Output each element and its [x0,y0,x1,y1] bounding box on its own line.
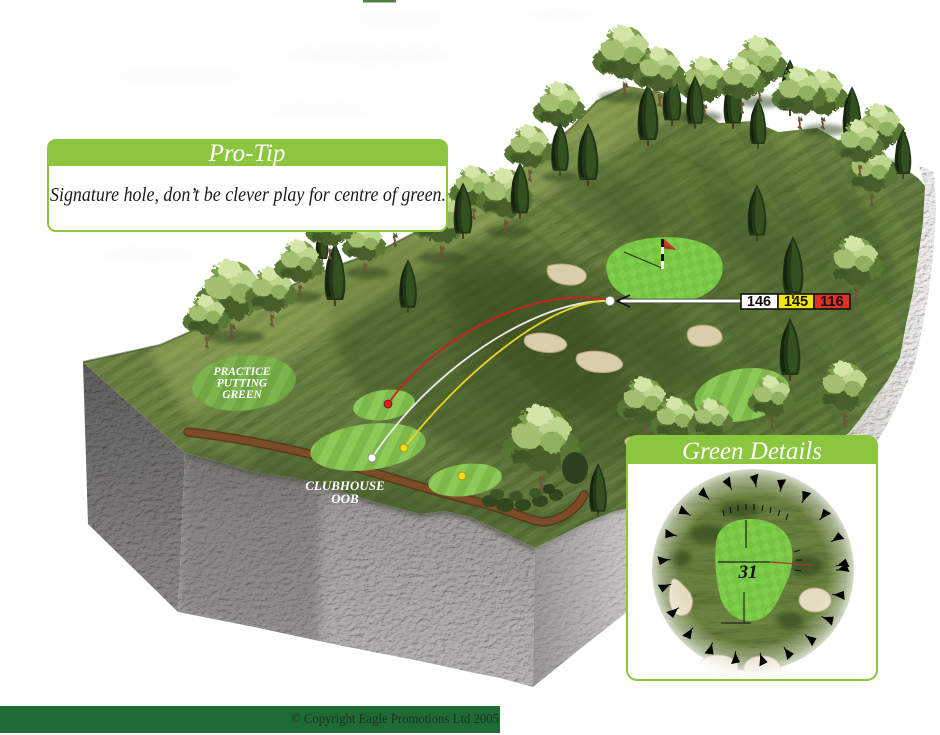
svg-text:OOB: OOB [331,491,359,506]
svg-text:GREEN: GREEN [222,389,262,401]
svg-text:Green Details: Green Details [682,438,822,465]
svg-text:145: 145 [784,294,808,310]
svg-text:© Copyright Eagle Promotions L: © Copyright Eagle Promotions Ltd 2005 [291,711,499,726]
svg-text:Pro-Tip: Pro-Tip [208,140,286,167]
svg-text:146: 146 [747,294,771,310]
svg-text:116: 116 [820,294,843,310]
svg-text:PRACTICE: PRACTICE [214,366,271,378]
svg-text:Signature hole, don’t be cleve: Signature hole, don’t be clever play for… [50,185,446,206]
svg-text:PUTTING: PUTTING [217,378,268,390]
